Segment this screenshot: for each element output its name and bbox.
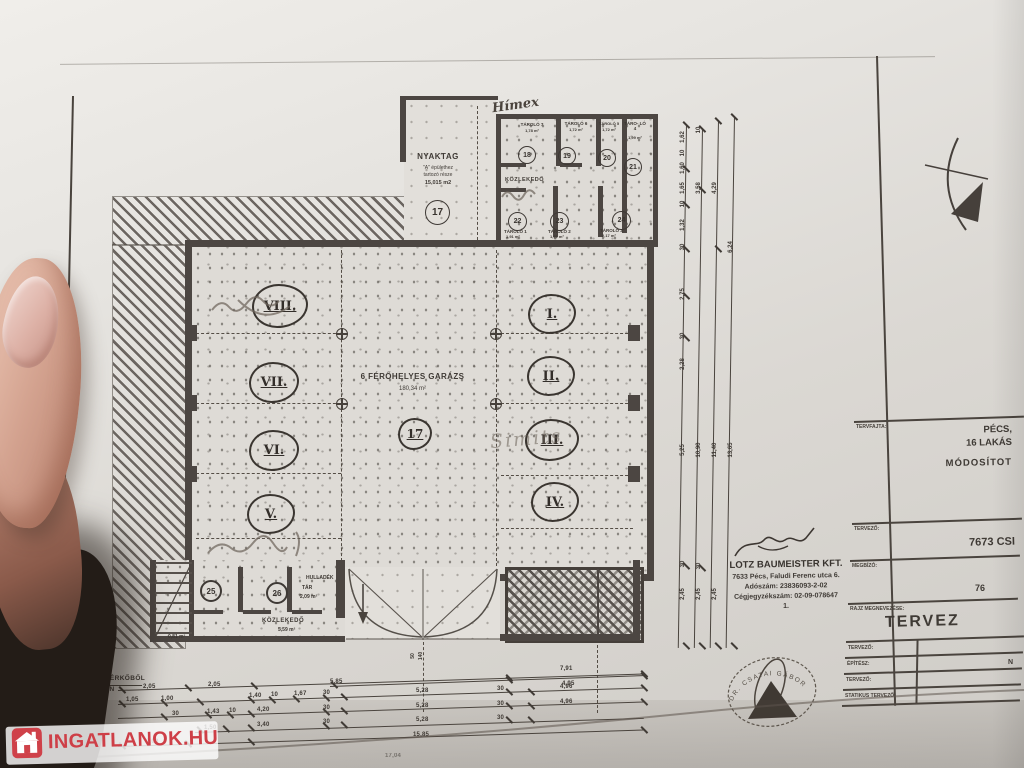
dim-label: 50 xyxy=(410,645,416,667)
wall-segment xyxy=(238,567,243,612)
garage-door-area xyxy=(345,567,500,639)
decor xyxy=(735,528,814,556)
north-arrow-icon xyxy=(925,138,988,230)
storage-5-label: TÁROLÓ 5 xyxy=(594,121,624,126)
nyaktag-area-value: 15,015 m2 xyxy=(400,181,476,187)
nyaktag-boundary-dashline xyxy=(477,106,478,240)
dim-label: 140 xyxy=(418,645,424,667)
room-26-number: 26 xyxy=(266,582,288,604)
dim-label: 6,24 xyxy=(728,236,734,258)
dim-label: 2,05 xyxy=(208,682,220,688)
stall-divider xyxy=(501,333,633,334)
stall-divider xyxy=(196,333,341,334)
dim-label: 10 xyxy=(271,692,278,698)
column-symbol xyxy=(336,328,348,340)
wall-segment xyxy=(501,163,526,167)
wall-segment xyxy=(193,610,223,614)
stall-divider xyxy=(196,473,341,474)
storage-2-area: 1,91 m² xyxy=(550,234,564,239)
storage-4-label: TÁRO- LÓ 4 xyxy=(624,121,646,132)
nyaktag-title: NYAKTAG xyxy=(400,153,476,161)
dim-label: 1,32 xyxy=(680,214,686,236)
tervezo-label: TERVEZŐ: xyxy=(854,526,879,532)
handwriting-top: Hímex xyxy=(491,95,540,116)
wall-segment xyxy=(628,395,640,411)
dimension-tick xyxy=(715,642,722,649)
decor xyxy=(948,138,966,230)
signature-icon xyxy=(735,528,814,556)
storage-7-label: TÁROLÓ 7 xyxy=(510,122,554,127)
wall-segment xyxy=(243,610,271,614)
wall-segment xyxy=(628,325,640,341)
firm-registry-number: Cégjegyzékszám: 02-09-078647 xyxy=(700,591,872,601)
firm-sheet-number: 1. xyxy=(700,603,872,610)
dim-label: 4,96 xyxy=(560,684,572,690)
dim-label: 10,90 xyxy=(696,439,702,461)
column-symbol xyxy=(336,398,348,410)
table-row-tervezo-1: TERVEZŐ: xyxy=(848,645,873,651)
stall-divider xyxy=(196,403,341,404)
storage-1-area: 1,91 m² xyxy=(506,234,520,239)
stairs xyxy=(153,562,192,638)
firm-name: LOTZ BAUMEISTER KFT. xyxy=(700,558,872,571)
frame-top-line xyxy=(60,56,935,65)
dim-label: 30 xyxy=(497,686,504,692)
table-row-tervezo-2: TERVEZŐ: xyxy=(846,677,871,683)
rajz-value: TERVEZ xyxy=(885,613,960,632)
storage-4-number: 21 xyxy=(624,158,642,176)
wall-segment xyxy=(185,395,197,411)
decor xyxy=(32,732,36,739)
dim-label: 2,05 xyxy=(143,684,155,690)
storage-3-area: 2,17 m² xyxy=(602,233,616,238)
storage-6-label: TÁROLÓ 6 xyxy=(556,121,596,126)
storage-7-number: 18 xyxy=(518,146,536,164)
storage-6-number: 19 xyxy=(558,147,576,165)
column-symbol xyxy=(490,328,502,340)
nyaktag-number-circle: 17 xyxy=(425,200,450,225)
wall-segment xyxy=(287,567,292,612)
lower-corridor-label: KÖZLEKEDŐ xyxy=(262,618,304,624)
watermark-text: INGATLANOK.HU xyxy=(48,728,219,753)
garage-area-value: 180,34 m² xyxy=(340,386,485,392)
garage-title: 6 FÉRŐHELYES GARÁZS xyxy=(340,373,485,381)
stall-divider xyxy=(501,528,633,529)
storage-5-area: 1,72 m² xyxy=(594,127,624,132)
stall-divider xyxy=(501,475,633,476)
wall-segment xyxy=(185,325,197,341)
firm-address: 7633 Pécs, Faludi Ferenc utca 6. xyxy=(700,571,872,581)
hatch-band-top xyxy=(113,197,405,245)
wall-segment xyxy=(185,466,197,482)
waste-room-label1: HULLADÉK xyxy=(306,575,334,581)
table-row-epitesz: ÉPÍTÉSZ: xyxy=(847,661,870,667)
decor xyxy=(24,745,30,753)
firm-tax-number: Adószám: 23836093-2-02 xyxy=(700,581,872,591)
wall-segment xyxy=(500,634,640,641)
decor xyxy=(925,165,988,179)
stair-area-value: 0,81 m² xyxy=(168,634,185,640)
right-vignette xyxy=(992,0,1024,768)
storage-corridor-label: KÖZLEKEDŐ xyxy=(505,178,544,184)
waste-room-label2: TÁR xyxy=(302,585,312,591)
dim-label: 5,28 xyxy=(416,688,428,694)
table-row-statikus: STATIKUS TERVEZŐ: xyxy=(845,693,896,699)
decor xyxy=(597,569,599,635)
dim-label: 7,91 xyxy=(560,666,572,672)
nyaktag-sub1: "A" épülethez xyxy=(400,166,476,171)
hatch-block-bottom-right xyxy=(505,567,644,643)
storage-5-number: 20 xyxy=(598,149,616,167)
wall-segment xyxy=(336,560,345,618)
tervfajta-label: TERVFAJTA: xyxy=(856,424,886,430)
dim-label: 5,25 xyxy=(680,439,686,461)
dim-label: 10 xyxy=(696,119,702,141)
stamp-text: DR. CSATAI GÁBOR xyxy=(728,669,808,702)
megbizo-value: 76 xyxy=(975,584,985,593)
dimension-tick xyxy=(731,642,738,649)
dim-label: 2,45 xyxy=(680,583,686,605)
dimension-tick xyxy=(699,642,706,649)
stall-divider xyxy=(501,403,633,404)
wall-segment xyxy=(501,188,526,192)
storage-7-area: 1,78 m² xyxy=(510,128,554,133)
house-icon xyxy=(12,728,43,759)
room-25-number: 25 xyxy=(200,580,222,602)
storage-6-area: 1,72 m² xyxy=(556,127,596,132)
dimension-tick xyxy=(683,642,690,649)
stall-divider xyxy=(196,538,341,539)
dim-label: 13,65 xyxy=(728,439,734,461)
dim-label: 4,29 xyxy=(712,177,718,199)
dim-label: 2,28 xyxy=(680,353,686,375)
column-symbol xyxy=(490,398,502,410)
nyaktag-sub2: tartozó része xyxy=(400,173,476,178)
dim-label: 11,40 xyxy=(712,439,718,461)
photo-of-floor-plan: NYAKTAG "A" épülethez tartozó része 15,0… xyxy=(0,0,1024,768)
storage-4-area: 1,99 m² xyxy=(624,135,646,140)
wall-segment xyxy=(292,610,322,614)
decor xyxy=(951,182,983,222)
wall-segment xyxy=(628,466,640,482)
nyaktag-wall-h xyxy=(400,96,498,100)
wall-segment xyxy=(633,560,640,640)
decor xyxy=(758,546,788,550)
decor: DR. CSATAI GÁBOR xyxy=(728,669,808,702)
waste-room-area: 2,09 m² xyxy=(300,594,317,600)
lower-corridor-area: 5,59 m² xyxy=(278,627,295,633)
